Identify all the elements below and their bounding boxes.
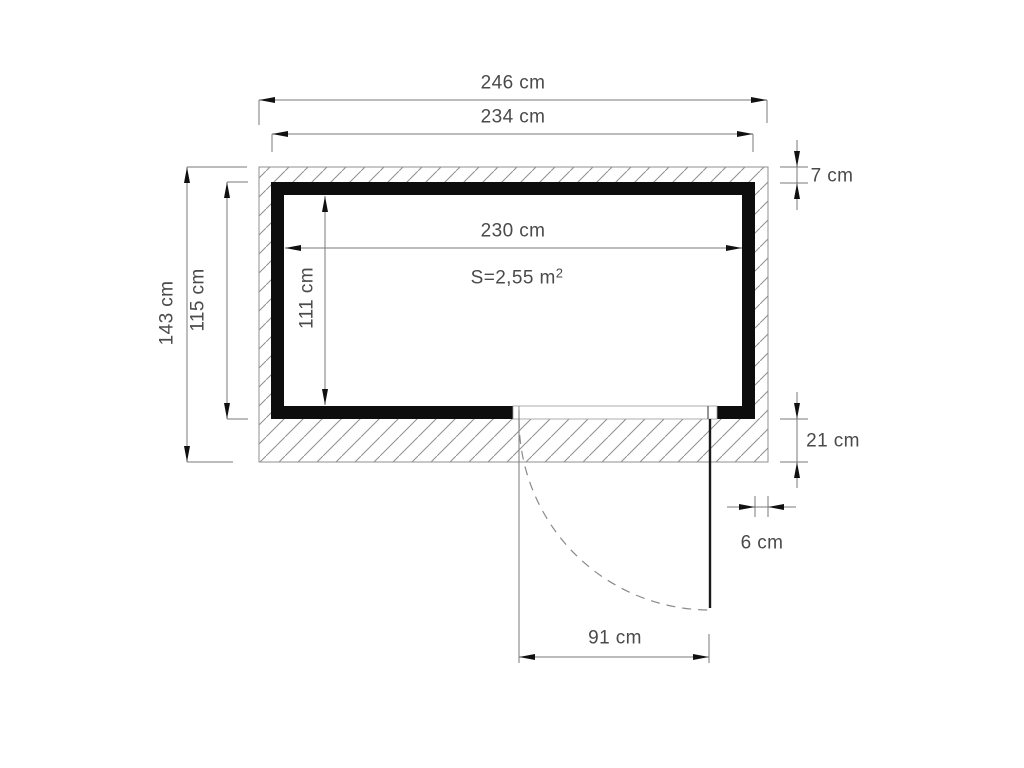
arrow-up <box>224 182 230 198</box>
arrow-down <box>794 151 800 167</box>
arrow-left <box>259 97 275 103</box>
bottom-wall-thickness-label: 21 cm <box>806 432 860 451</box>
door-width-label: 91 cm <box>588 629 642 648</box>
interior-depth-label: 111 cm <box>298 267 317 329</box>
arrow-down <box>794 403 800 419</box>
arrow-right <box>693 654 709 660</box>
area-exponent: 2 <box>556 266 564 281</box>
arrow-down <box>184 446 190 462</box>
top-wall-thickness-label: 7 cm <box>811 167 854 186</box>
arrow-left <box>768 504 784 510</box>
arrow-up <box>184 167 190 183</box>
side-wall-thickness-label: 6 cm <box>741 534 784 553</box>
arrow-down <box>224 403 230 419</box>
arrow-left <box>272 131 288 137</box>
arrow-right <box>751 97 767 103</box>
area-value: S=2,55 m <box>471 268 556 289</box>
arrow-up <box>794 183 800 199</box>
outer-depth-label: 143 cm <box>158 281 177 346</box>
outer-width-label: 246 cm <box>481 74 546 93</box>
door-threshold <box>513 406 717 419</box>
arrow-right <box>737 131 753 137</box>
arrow-up <box>794 462 800 478</box>
arrow-right <box>739 504 755 510</box>
interior-width-label: 230 cm <box>481 222 546 241</box>
wall-depth-label: 115 cm <box>189 268 208 331</box>
arrow-left <box>519 654 535 660</box>
wall-width-label: 234 cm <box>481 108 546 127</box>
floor-plan-canvas: 246 cm 234 cm 230 cm 143 cm 115 cm 111 c… <box>0 0 1024 768</box>
area-label: S=2,55 m2 <box>471 269 564 288</box>
